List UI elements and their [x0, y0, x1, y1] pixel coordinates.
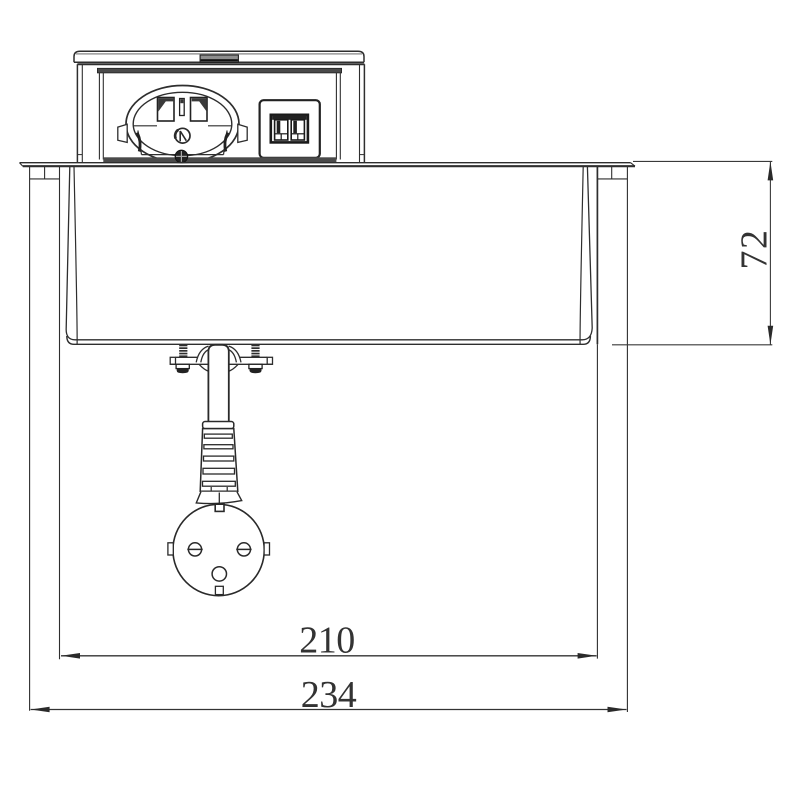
svg-text:234: 234	[301, 674, 357, 716]
svg-text:72: 72	[734, 229, 776, 270]
svg-text:210: 210	[299, 620, 355, 662]
